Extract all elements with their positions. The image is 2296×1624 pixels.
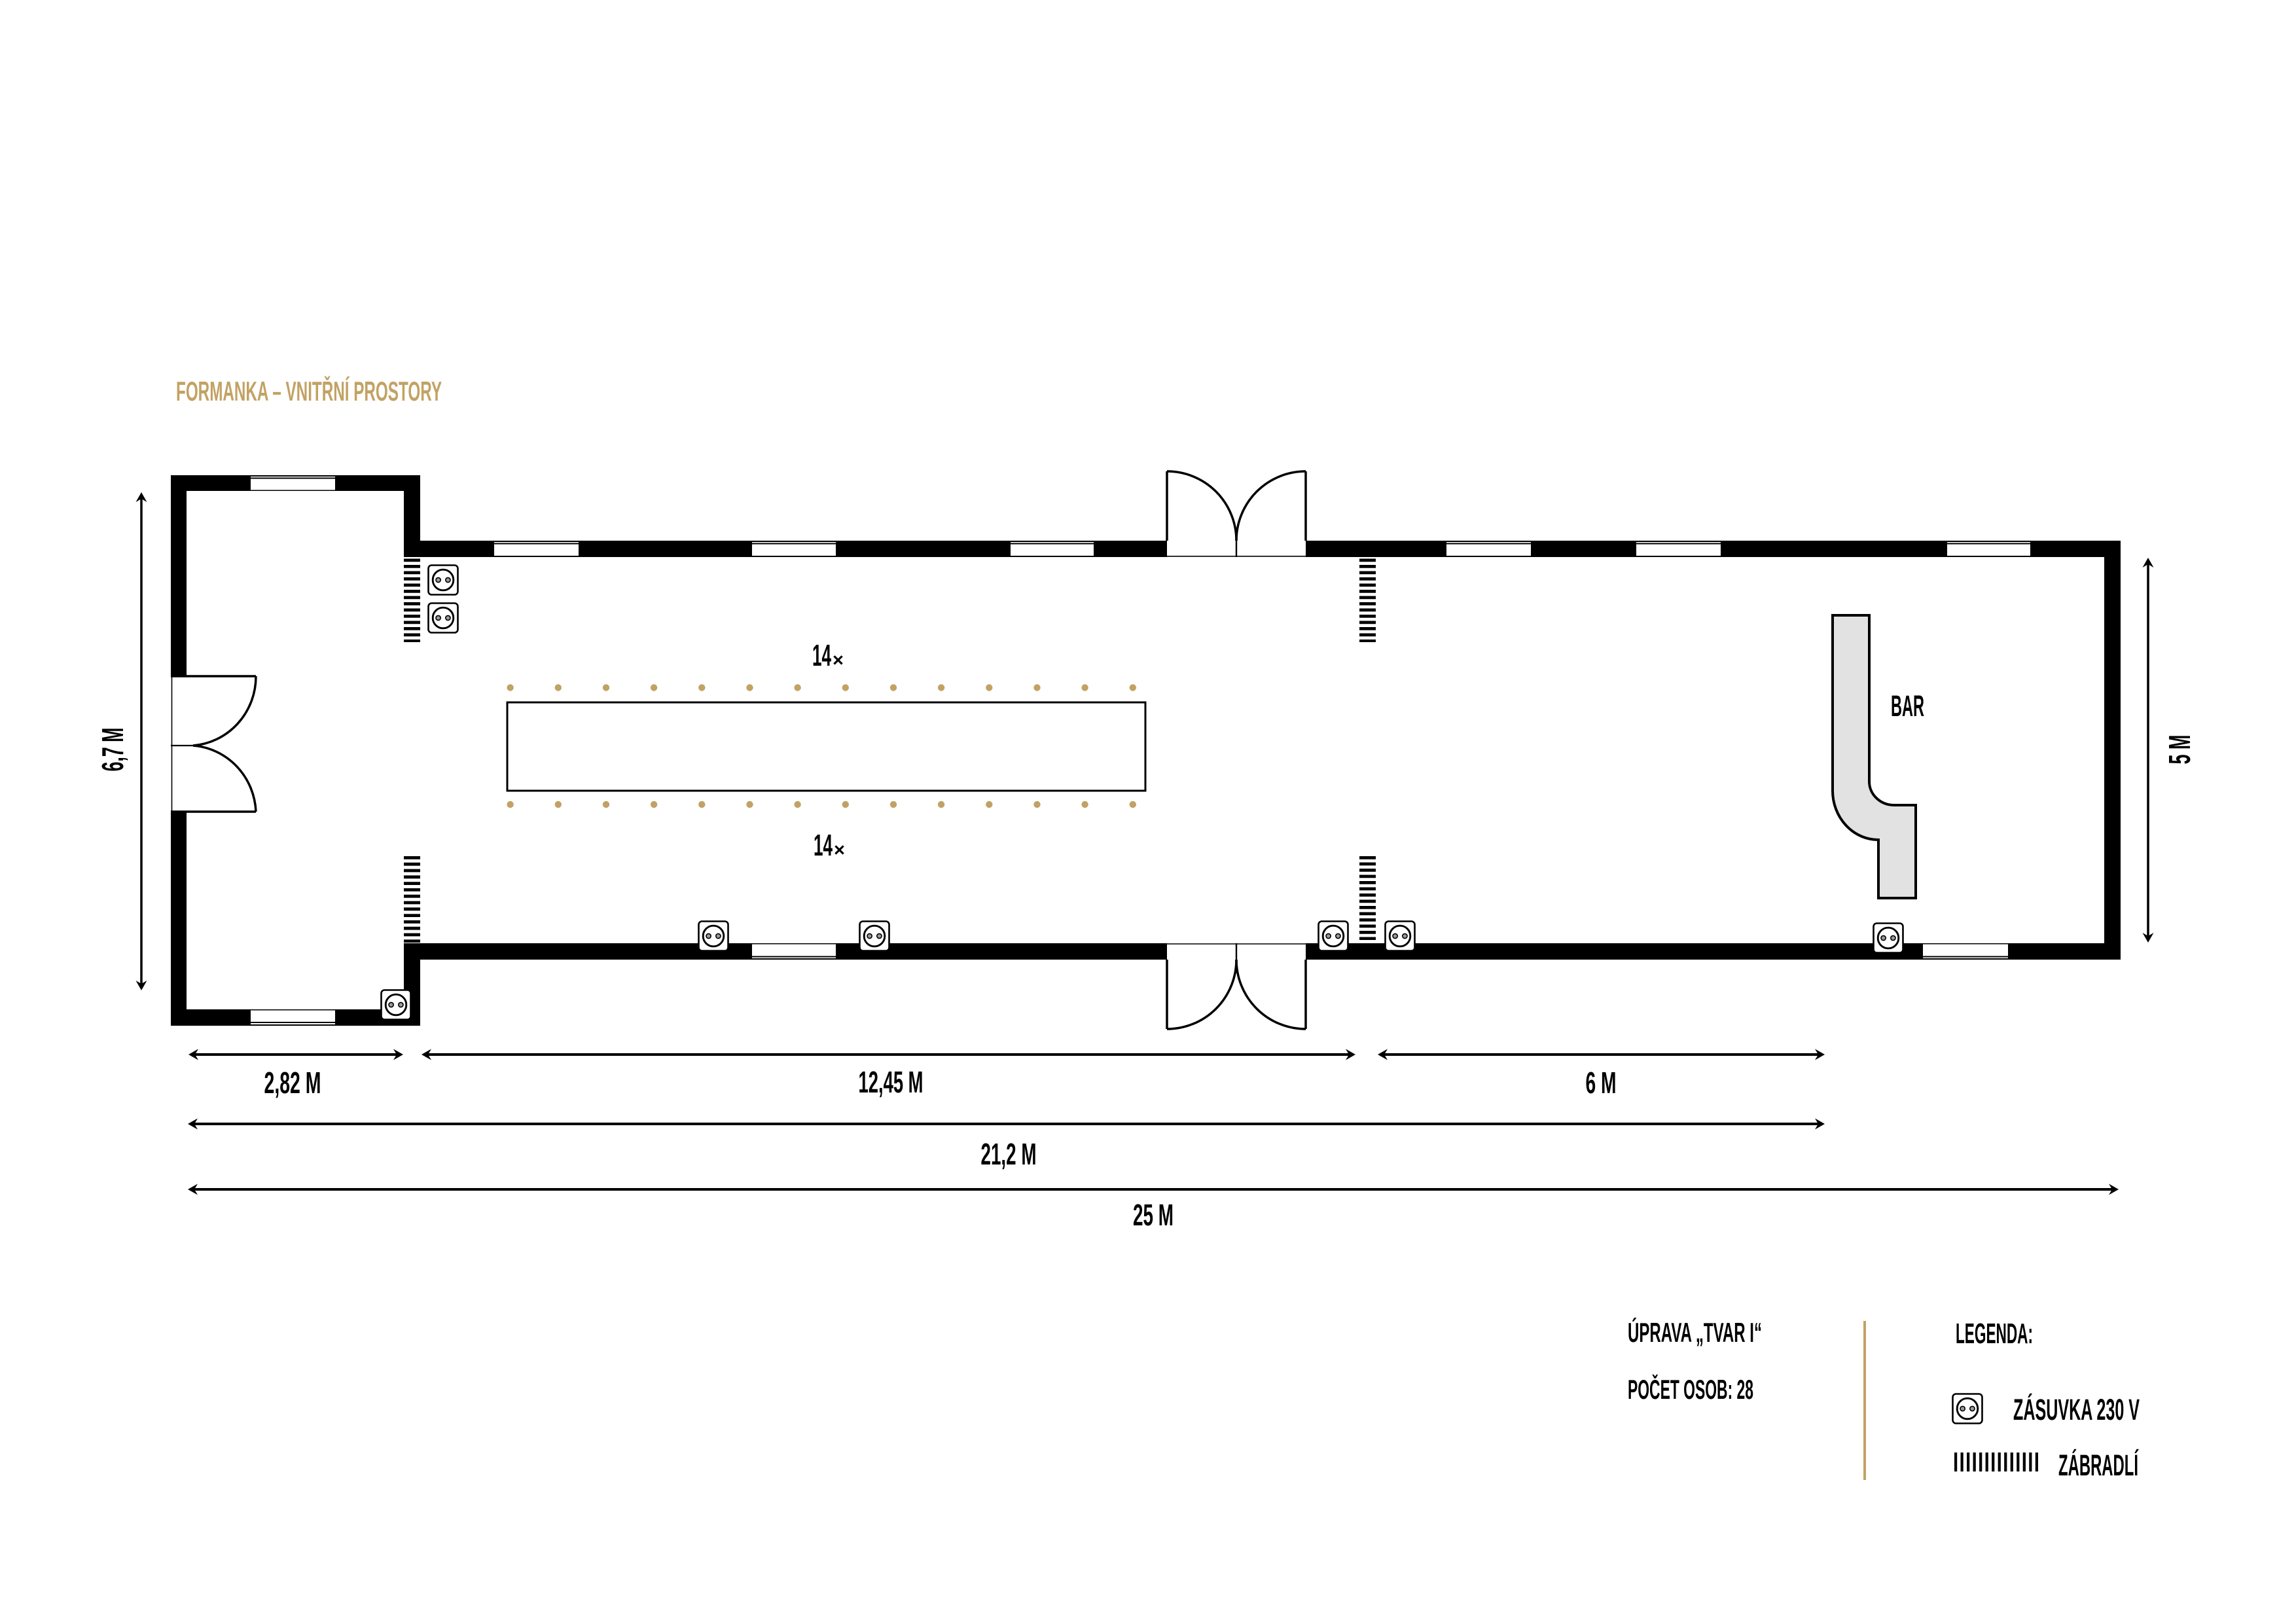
svg-text:BAR: BAR [1891, 689, 1924, 723]
svg-text:×: × [833, 650, 844, 671]
svg-text:×: × [834, 840, 845, 861]
svg-text:6 M: 6 M [1586, 1066, 1617, 1100]
svg-text:5 M: 5 M [2162, 735, 2197, 765]
svg-text:14: 14 [812, 638, 831, 672]
svg-text:FORMANKA – VNITŘNÍ PROSTORY: FORMANKA – VNITŘNÍ PROSTORY [176, 375, 442, 406]
svg-text:12,45 M: 12,45 M [859, 1065, 924, 1099]
svg-text:2,82 M: 2,82 M [264, 1066, 321, 1100]
svg-text:ZÁBRADLÍ: ZÁBRADLÍ [2058, 1449, 2139, 1482]
svg-text:ÚPRAVA „TVAR I“: ÚPRAVA „TVAR I“ [1628, 1316, 1762, 1348]
svg-text:ZÁSUVKA 230 V: ZÁSUVKA 230 V [2013, 1393, 2140, 1426]
svg-text:25 M: 25 M [1133, 1198, 1174, 1232]
svg-text:21,2 M: 21,2 M [981, 1137, 1037, 1171]
svg-text:14: 14 [814, 828, 833, 862]
svg-text:LEGENDA:: LEGENDA: [1956, 1318, 2033, 1350]
svg-text:6,7 M: 6,7 M [96, 728, 130, 772]
svg-text:POČET OSOB: 28: POČET OSOB: 28 [1628, 1373, 1753, 1405]
